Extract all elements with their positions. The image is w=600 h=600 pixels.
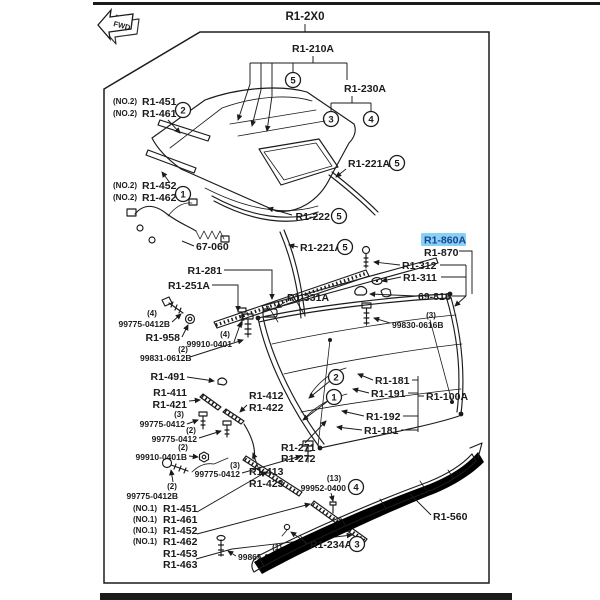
label-r1-221a-2: R1-221A	[300, 242, 342, 254]
label-99775-0412b-2: 99775-0412B	[126, 491, 178, 501]
label-67-060: 67-060	[196, 241, 229, 253]
svg-text:(NO.2): (NO.2)	[113, 109, 137, 118]
parts-catalog-page: FWD R1-2X0 R1-210A 5 R1-230A 3 4 (NO.2) …	[0, 0, 600, 600]
svg-text:(2): (2)	[178, 443, 188, 452]
screw-r1-312	[363, 247, 370, 269]
label-r1-462-no1: R1-462	[163, 536, 198, 548]
label-r1-423: R1-423	[249, 478, 284, 490]
labelblock-r1-221a-lower: R1-221A 5	[289, 240, 353, 255]
group-r1-210a: R1-210A 5 R1-230A 3 4	[238, 43, 386, 131]
label-r1-191: R1-191	[371, 388, 406, 400]
svg-text:3: 3	[328, 115, 333, 126]
label-r1-411: R1-411	[153, 387, 187, 399]
label-r1-312: R1-312	[402, 260, 437, 272]
clips-69-818	[355, 287, 391, 297]
svg-text:(NO.2): (NO.2)	[113, 193, 137, 202]
svg-text:5: 5	[336, 212, 342, 223]
label-r1-181-bottom: R1-181	[364, 425, 399, 437]
svg-text:(2): (2)	[167, 482, 177, 491]
svg-text:(3): (3)	[426, 311, 436, 320]
side-weatherstrips	[146, 120, 210, 173]
label-r1-272: R1-272	[281, 453, 316, 465]
label-r1-234a: R1-234A	[310, 539, 352, 551]
svg-text:4: 4	[368, 115, 374, 126]
label-r1-222: R1-222	[296, 211, 331, 223]
label-r1-422: R1-422	[249, 402, 284, 414]
label-99775-0412-c: 99775-0412	[195, 469, 241, 479]
labelblock-no2-451-461: (NO.2) R1-451 (NO.2) R1-461 2	[113, 96, 191, 133]
svg-text:(NO.2): (NO.2)	[113, 181, 137, 190]
label-r1-210a: R1-210A	[292, 43, 334, 55]
label-r1-192: R1-192	[366, 411, 401, 423]
label-99910-0401b: 99910-0401B	[135, 452, 187, 462]
screw-99952-0400	[330, 502, 336, 513]
svg-text:(NO.1): (NO.1)	[133, 504, 157, 513]
label-r1-331a: R1-331A	[287, 292, 329, 304]
page-bottom-bar	[100, 593, 512, 600]
label-99910-0401: 99910-0401	[187, 339, 233, 349]
hinge-clip	[263, 309, 279, 334]
label-99775-0412-a: 99775-0412	[140, 419, 186, 429]
svg-text:5: 5	[394, 159, 400, 170]
label-r1-462: R1-462	[142, 192, 177, 204]
label-r1-463: R1-463	[163, 559, 198, 571]
label-r1-281: R1-281	[188, 265, 223, 277]
svg-text:(NO.1): (NO.1)	[133, 526, 157, 535]
label-99952-0400: 99952-0400	[301, 483, 347, 493]
assembly-number-label: R1-2X0	[286, 11, 325, 23]
parts-diagram-soft-top: FWD R1-2X0 R1-210A 5 R1-230A 3 4 (NO.2) …	[0, 0, 600, 600]
label-r1-412: R1-412	[249, 390, 284, 402]
label-r1-230a: R1-230A	[344, 83, 386, 95]
svg-text:(NO.1): (NO.1)	[133, 537, 157, 546]
label-r1-311: R1-311	[403, 272, 437, 284]
svg-text:(13): (13)	[327, 474, 342, 483]
labelblock-r1-221a-upper: R1-221A 5	[336, 156, 405, 178]
svg-text:4: 4	[353, 483, 359, 494]
frame-link-labels: R1-181 R1-191 R1-100A R1-192 R1-181	[337, 374, 468, 437]
svg-text:2: 2	[333, 373, 338, 384]
nut-99910-0401b	[200, 452, 209, 462]
svg-text:(NO.2): (NO.2)	[113, 97, 137, 106]
label-r1-560: R1-560	[433, 511, 468, 523]
svg-text:1: 1	[180, 190, 186, 201]
label-99775-0412b: 99775-0412B	[118, 319, 170, 329]
label-r1-870: R1-870	[424, 247, 459, 259]
label-99831-0612b: 99831-0612B	[140, 353, 192, 363]
fwd-arrow-icon: FWD	[98, 10, 139, 44]
wiring-harness: 67-060	[127, 199, 229, 253]
svg-text:5: 5	[342, 243, 348, 254]
label-r1-181-top: R1-181	[375, 375, 410, 387]
screw-99775-0412-b	[223, 421, 231, 437]
screw-r1-234a	[282, 524, 290, 536]
svg-text:(4): (4)	[220, 330, 230, 339]
label-r1-221a: R1-221A	[348, 158, 390, 170]
label-r1-860a-selected[interactable]: R1-860A	[424, 235, 466, 247]
svg-text:3: 3	[354, 540, 359, 551]
label-r1-451: R1-451	[142, 96, 177, 108]
label-99775-0412-b: 99775-0412	[152, 434, 198, 444]
label-r1-100a: R1-100A	[426, 391, 468, 403]
label-r1-958: R1-958	[146, 332, 181, 344]
labelblock-no2-452-462: (NO.2) R1-452 (NO.2) R1-462 1	[113, 172, 191, 204]
clip-r1-491	[218, 378, 227, 385]
svg-text:(NO.1): (NO.1)	[133, 515, 157, 524]
label-r1-461: R1-461	[142, 108, 177, 120]
svg-text:(3): (3)	[174, 410, 184, 419]
bolt-99830-0616b	[362, 303, 371, 325]
tension-rod-group	[199, 378, 255, 462]
svg-text:(4): (4)	[147, 309, 157, 318]
svg-text:5: 5	[290, 76, 296, 87]
label-r1-452: R1-452	[142, 180, 177, 192]
svg-text:1: 1	[331, 393, 337, 404]
svg-text:2: 2	[180, 106, 185, 117]
label-r1-251a: R1-251A	[168, 280, 210, 292]
screw-99775-0412-a	[199, 412, 207, 429]
label-r1-491: R1-491	[151, 371, 186, 383]
